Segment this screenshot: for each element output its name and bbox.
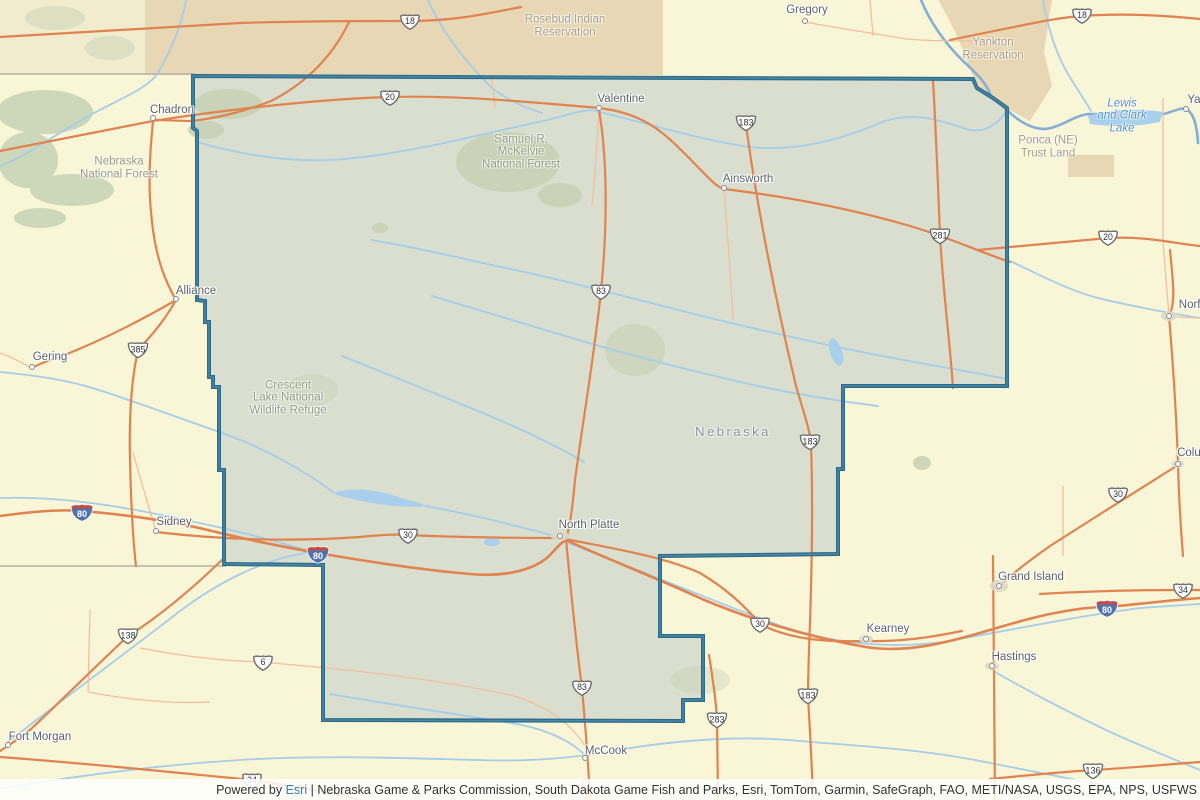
attribution-bar: Powered by Esri | Nebraska Game & Parks … [0,779,1200,800]
attribution-sources: Nebraska Game & Parks Commission, South … [317,783,1197,797]
map-canvas[interactable] [0,0,1200,800]
map-viewport[interactable]: ChadronValentineAinsworthGregoryAlliance… [0,0,1200,800]
rosebud-reservation-area [145,0,663,75]
ponca-trust-land-area [1068,155,1114,177]
esri-attribution-link[interactable]: Esri [286,783,308,797]
attribution-powered-by: Powered by [216,783,282,797]
